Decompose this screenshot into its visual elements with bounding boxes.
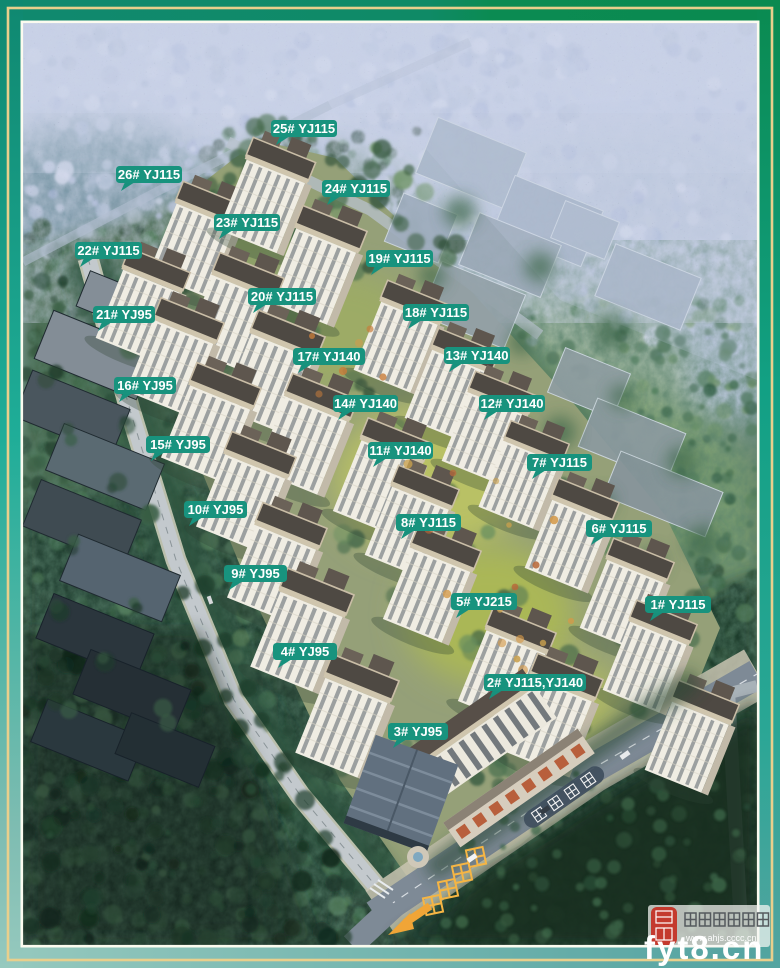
svg-text:25# YJ115: 25# YJ115 — [273, 121, 335, 136]
svg-text:17# YJ140: 17# YJ140 — [298, 349, 361, 364]
svg-text:8# YJ115: 8# YJ115 — [401, 515, 456, 530]
svg-text:22# YJ115: 22# YJ115 — [77, 243, 139, 258]
svg-text:12# YJ140: 12# YJ140 — [481, 396, 544, 411]
svg-text:21# YJ95: 21# YJ95 — [96, 307, 152, 322]
svg-text:1# YJ115: 1# YJ115 — [651, 597, 706, 612]
svg-text:4# YJ95: 4# YJ95 — [281, 644, 329, 659]
svg-text:2# YJ115,YJ140: 2# YJ115,YJ140 — [487, 675, 583, 690]
svg-text:13# YJ140: 13# YJ140 — [446, 348, 509, 363]
svg-text:14# YJ140: 14# YJ140 — [334, 396, 397, 411]
svg-text:fyt8.cn: fyt8.cn — [644, 929, 764, 966]
svg-text:20# YJ115: 20# YJ115 — [251, 289, 313, 304]
svg-text:26# YJ115: 26# YJ115 — [118, 167, 180, 182]
svg-text:3# YJ95: 3# YJ95 — [394, 724, 442, 739]
svg-text:19# YJ115: 19# YJ115 — [368, 251, 430, 266]
svg-text:5# YJ215: 5# YJ215 — [456, 594, 512, 609]
svg-text:16# YJ95: 16# YJ95 — [117, 378, 173, 393]
svg-text:18# YJ115: 18# YJ115 — [405, 305, 467, 320]
svg-text:23# YJ115: 23# YJ115 — [216, 215, 278, 230]
svg-text:7# YJ115: 7# YJ115 — [532, 455, 587, 470]
svg-text:9# YJ95: 9# YJ95 — [231, 566, 279, 581]
svg-text:11# YJ140: 11# YJ140 — [369, 443, 431, 458]
svg-text:10# YJ95: 10# YJ95 — [188, 502, 244, 517]
svg-text:24# YJ115: 24# YJ115 — [325, 181, 387, 196]
svg-text:6# YJ115: 6# YJ115 — [592, 521, 647, 536]
svg-text:15# YJ95: 15# YJ95 — [150, 437, 206, 452]
